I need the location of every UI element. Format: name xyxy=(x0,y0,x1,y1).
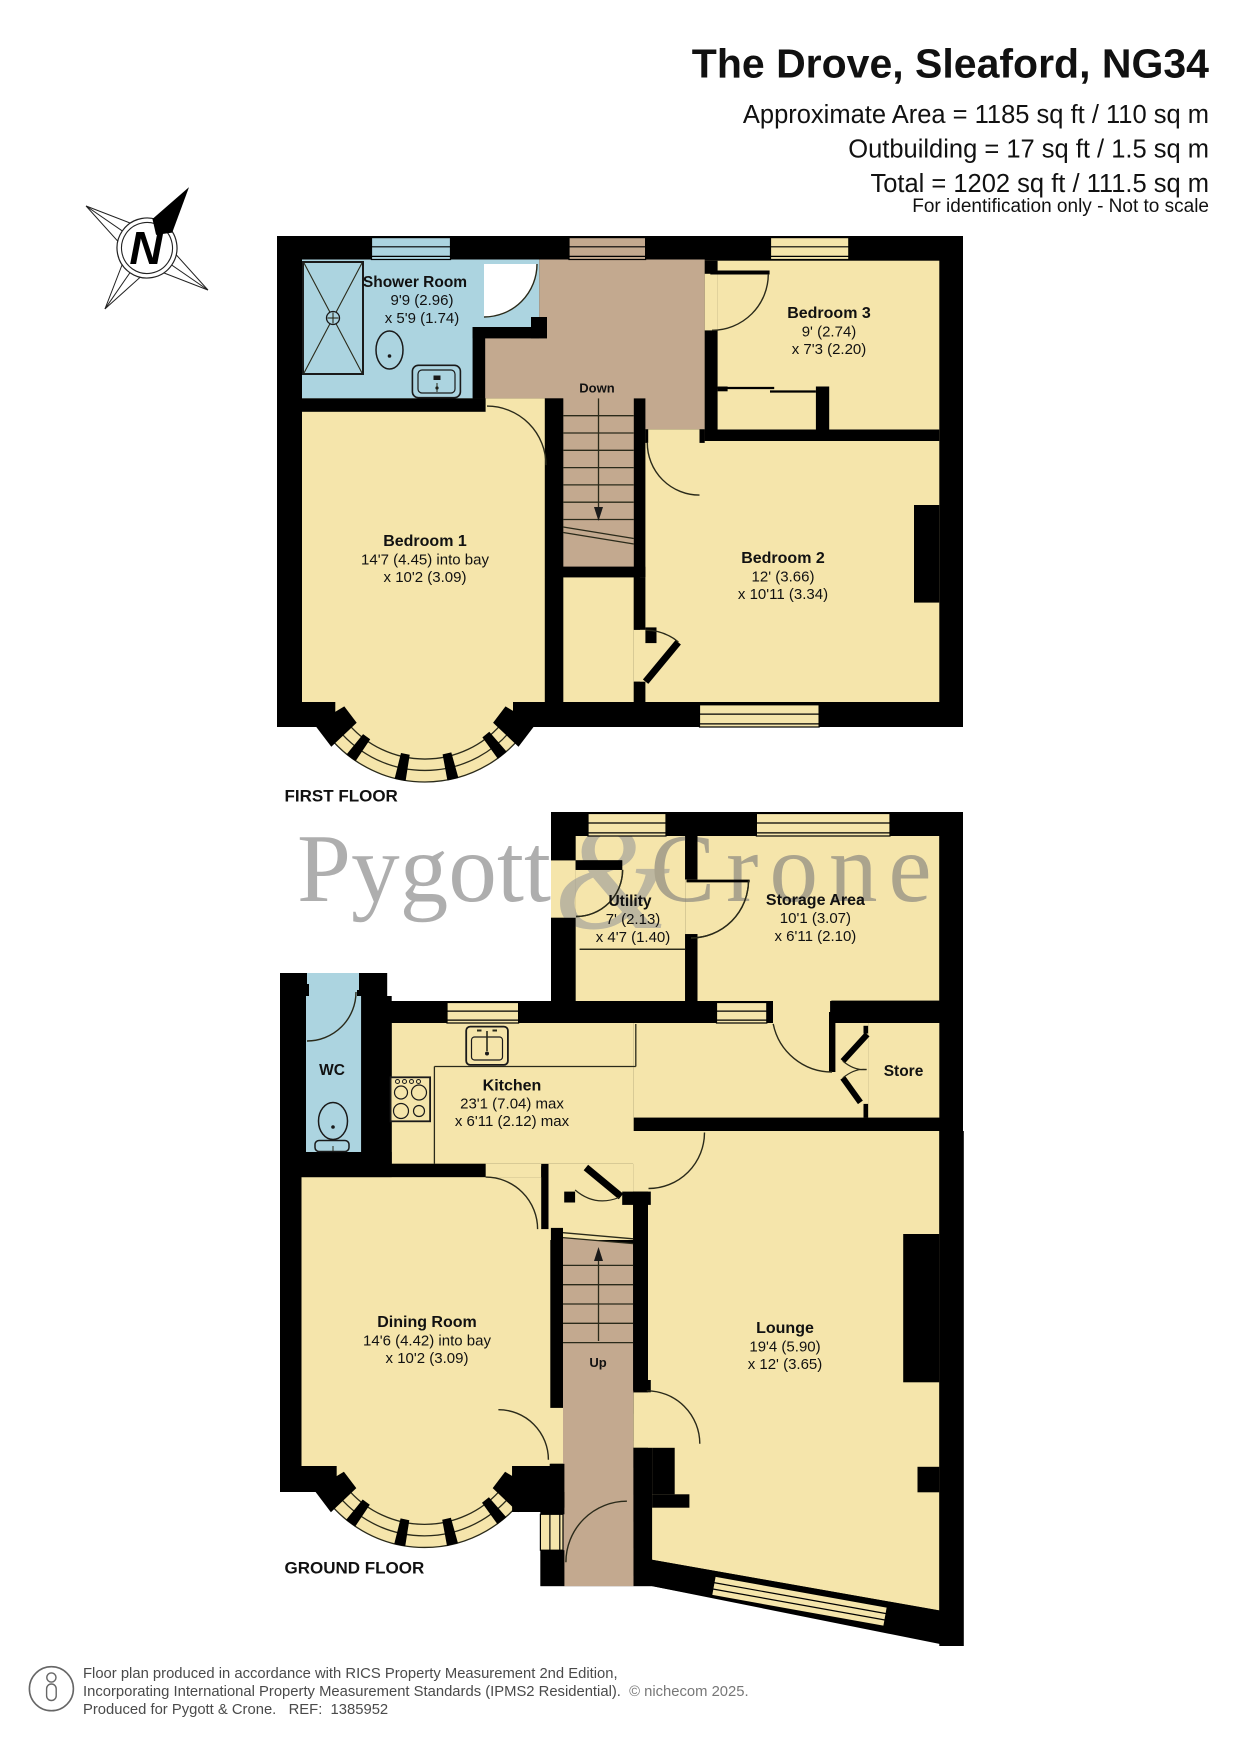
svg-text:x 10'2 (3.09): x 10'2 (3.09) xyxy=(384,569,467,586)
svg-text:Storage Area: Storage Area xyxy=(766,892,865,909)
svg-text:x 4'7 (1.40): x 4'7 (1.40) xyxy=(596,929,671,946)
svg-text:Bedroom 2: Bedroom 2 xyxy=(741,550,825,567)
svg-text:Dining Room: Dining Room xyxy=(377,1314,477,1331)
svg-text:Pygott: Pygott xyxy=(297,815,551,922)
svg-text:Store: Store xyxy=(884,1063,924,1080)
svg-text:x 12' (3.65): x 12' (3.65) xyxy=(748,1356,823,1373)
svg-text:Lounge: Lounge xyxy=(756,1320,814,1337)
svg-text:10'1 (3.07): 10'1 (3.07) xyxy=(780,910,851,927)
svg-text:9'9 (2.96): 9'9 (2.96) xyxy=(391,292,454,309)
svg-text:x 10'2 (3.09): x 10'2 (3.09) xyxy=(386,1350,469,1367)
svg-text:For identification only - Not: For identification only - Not to scale xyxy=(912,196,1209,217)
svg-text:Bedroom 1: Bedroom 1 xyxy=(383,533,467,550)
svg-text:Produced for Pygott & Crone.: Produced for Pygott & Crone. REF: 138595… xyxy=(83,1702,388,1718)
svg-text:7' (2.13): 7' (2.13) xyxy=(606,911,661,928)
svg-text:x 10'11 (3.34): x 10'11 (3.34) xyxy=(738,586,828,603)
svg-text:Down: Down xyxy=(579,381,614,396)
svg-text:9' (2.74): 9' (2.74) xyxy=(802,324,857,341)
svg-text:Outbuilding = 17 sq ft / 1.5 s: Outbuilding = 17 sq ft / 1.5 sq m xyxy=(848,136,1209,164)
svg-text:Total = 1202 sq ft / 111.5 sq: Total = 1202 sq ft / 111.5 sq m xyxy=(870,170,1209,198)
svg-text:N: N xyxy=(129,222,163,274)
svg-text:Bedroom 3: Bedroom 3 xyxy=(787,305,871,322)
svg-text:14'7 (4.45) into bay: 14'7 (4.45) into bay xyxy=(361,552,489,569)
svg-text:Floor plan produced in accorda: Floor plan produced in accordance with R… xyxy=(83,1666,618,1682)
svg-text:Kitchen: Kitchen xyxy=(483,1078,542,1095)
svg-text:Shower Room: Shower Room xyxy=(363,274,467,291)
svg-text:WC: WC xyxy=(319,1062,345,1079)
svg-text:x 6'11 (2.12) max: x 6'11 (2.12) max xyxy=(455,1113,570,1130)
svg-text:Incorporating International Pr: Incorporating International Property Mea… xyxy=(83,1684,749,1700)
svg-text:23'1 (7.04) max: 23'1 (7.04) max xyxy=(460,1096,564,1113)
svg-text:Utility: Utility xyxy=(608,893,651,910)
svg-text:Up: Up xyxy=(589,1355,606,1370)
svg-text:12' (3.66): 12' (3.66) xyxy=(752,569,815,586)
svg-text:Approximate Area = 1185 sq ft: Approximate Area = 1185 sq ft / 110 sq m xyxy=(743,101,1209,129)
svg-text:FIRST FLOOR: FIRST FLOOR xyxy=(285,787,398,806)
svg-text:19'4 (5.90): 19'4 (5.90) xyxy=(749,1339,820,1356)
svg-text:x 5'9 (1.74): x 5'9 (1.74) xyxy=(385,310,460,327)
svg-text:14'6 (4.42) into bay: 14'6 (4.42) into bay xyxy=(363,1333,491,1350)
svg-text:The Drove, Sleaford, NG34: The Drove, Sleaford, NG34 xyxy=(692,41,1209,87)
svg-text:x 7'3 (2.20): x 7'3 (2.20) xyxy=(792,341,867,358)
svg-text:GROUND FLOOR: GROUND FLOOR xyxy=(285,1559,425,1578)
svg-text:x 6'11 (2.10): x 6'11 (2.10) xyxy=(775,928,857,945)
